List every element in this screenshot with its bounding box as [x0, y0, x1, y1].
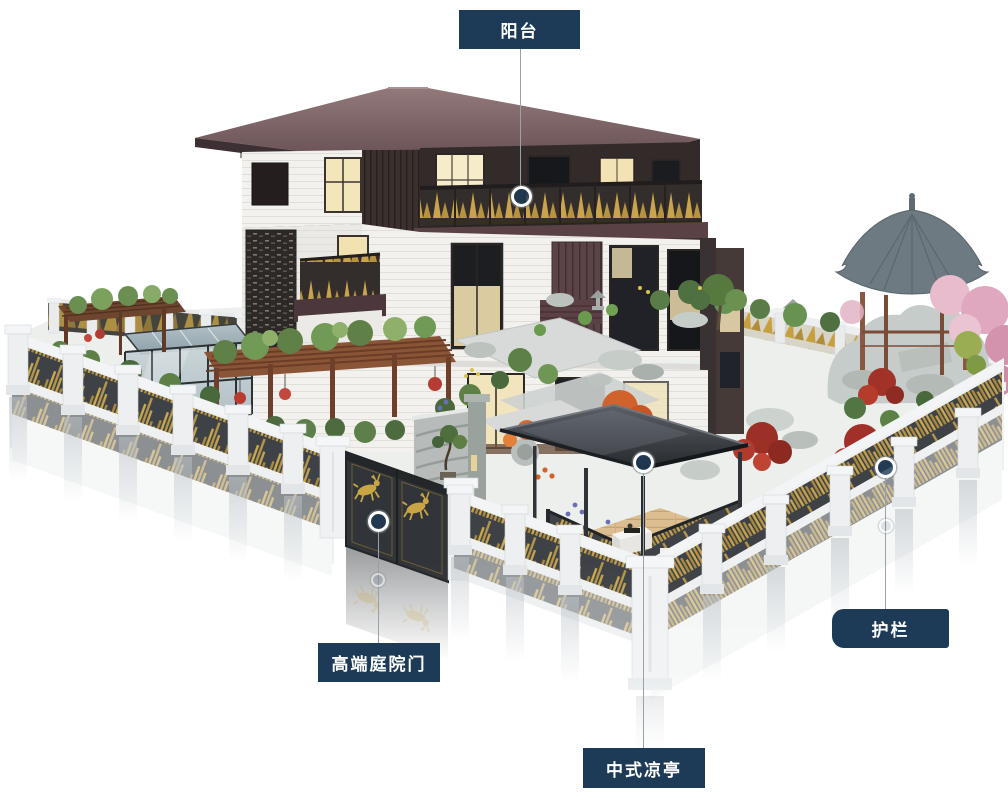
balcony-label-text: 阳台 — [501, 17, 539, 42]
pavilion-label-text: 中式凉亭 — [606, 756, 682, 781]
gate-marker[interactable] — [368, 511, 389, 532]
railing-label-text: 护栏 — [872, 616, 910, 641]
gate-marker-reflection — [371, 573, 385, 587]
railing-marker-reflection — [879, 519, 893, 533]
gate-label-text: 高端庭院门 — [332, 650, 427, 675]
pavilion-marker[interactable] — [633, 452, 654, 473]
pavilion-label: 中式凉亭 — [583, 748, 705, 788]
gate-leader-line — [378, 532, 379, 643]
balcony-marker[interactable] — [511, 186, 532, 207]
gate-label: 高端庭院门 — [318, 643, 440, 682]
villa-rendering: 阳台 高端庭院门 中式凉亭 护栏 — [0, 0, 1008, 800]
railing-leader-line — [885, 478, 886, 609]
railing-marker[interactable] — [875, 457, 896, 478]
balcony-label: 阳台 — [459, 10, 580, 49]
railing-label: 护栏 — [832, 609, 949, 648]
balcony-leader-line — [520, 49, 521, 187]
annotation-layer: 阳台 高端庭院门 中式凉亭 护栏 — [0, 0, 1008, 800]
pavilion-leader-line — [643, 473, 644, 748]
